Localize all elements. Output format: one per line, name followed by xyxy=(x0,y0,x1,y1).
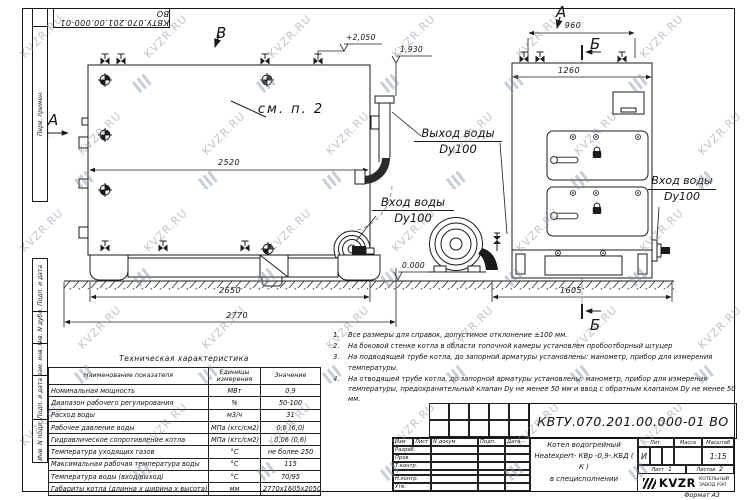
spec-header-units: Единицы измерения xyxy=(209,368,261,385)
spec-cell: Температура уходящих газов xyxy=(49,446,209,458)
bolt-icon xyxy=(571,191,576,196)
spec-table: Наименование показателя Единицы измерени… xyxy=(48,367,321,496)
product-title: Котел водогрейный Heatexpert- КВр -0,9-.… xyxy=(530,438,637,491)
title-block-main: Изм Лист N докум. Подп. Дата Разраб. Про… xyxy=(392,437,735,492)
dim-body-length: 2520 xyxy=(199,158,259,167)
top-inverted-stamp: КВТУ.070.201.00.000-01 ВО xyxy=(53,8,170,28)
callout-water-outlet-dn: Dy100 xyxy=(414,142,502,156)
sig-role: Разраб. xyxy=(393,446,431,454)
note-number: 1. xyxy=(333,330,348,340)
rev-header-row: Изм Лист N докум. Подп. Дата xyxy=(393,438,530,446)
sidebar-box-inv-dubl: Инв. N дубл. xyxy=(32,311,48,345)
spec-header-name: Наименование показателя xyxy=(49,368,209,385)
valve-icon xyxy=(536,52,545,63)
note-item: 4. На отводящей трубе котла, до запорной… xyxy=(333,374,737,405)
spec-row: Номинальная мощностьМВт0,9 xyxy=(49,385,321,397)
spec-cell: Расход воды xyxy=(49,409,209,421)
rev-header: Изм xyxy=(393,438,413,446)
level-ground: 0.000 xyxy=(402,261,425,270)
sidebar-box-vzam-inv: Взам. инв. N xyxy=(32,343,48,377)
document-number: КВТУ.070.201.00.000-01 ВО xyxy=(529,403,737,439)
sidebar-box-podp-data-1: Подп. и дата xyxy=(32,258,48,313)
spec-cell: мм xyxy=(209,483,261,495)
spec-cell: 0,06 (0,6) xyxy=(261,434,321,446)
spec-row: Гидравлическое сопротивление котлаМПа (к… xyxy=(49,434,321,446)
spec-cell: Номинальная мощность xyxy=(49,385,209,397)
level-flue: 1,930 xyxy=(400,45,423,54)
company-name: КОТЕЛЬНЫЙ ЗАВОД РЭП xyxy=(699,477,729,488)
spec-row: Расход водым3/ч31 xyxy=(49,409,321,421)
lit-value: И xyxy=(638,447,650,465)
note-text: Все размеры для справок, допустимое откл… xyxy=(348,330,567,340)
rev-header: Подп. xyxy=(478,438,505,446)
callout-water-inlet-right-text: Вход воды xyxy=(648,174,716,190)
rev-header: N докум. xyxy=(431,438,478,446)
spec-cell: Габариты котла (длинна х ширина х высота… xyxy=(49,483,209,495)
company-name-line2: ЗАВОД РЭП xyxy=(699,483,729,489)
boiler-front-view xyxy=(428,17,670,319)
callout-water-inlet-left: Вход воды Dy100 xyxy=(372,195,454,226)
spec-cell: °С xyxy=(209,471,261,483)
sig-row: Разраб. xyxy=(393,446,530,454)
spec-cell: 70/95 xyxy=(261,471,321,483)
sheet-value: 1 xyxy=(668,466,672,473)
spec-cell: 50-100 xyxy=(261,397,321,409)
sidebar-label: Взам. инв. N xyxy=(37,341,44,380)
valve-icon xyxy=(261,54,270,65)
signature-table: Изм Лист N докум. Подп. Дата Разраб. Про… xyxy=(393,438,530,491)
spec-cell: 31 xyxy=(261,409,321,421)
bolt-icon xyxy=(636,135,641,140)
section-label-a-top: А xyxy=(556,3,566,21)
sig-role: Утв. xyxy=(393,483,431,491)
bolt-icon xyxy=(556,251,561,256)
spec-row: Габариты котла (длинна х ширина х высота… xyxy=(49,483,321,495)
sidebar-label: Инв. N подл. xyxy=(37,421,44,461)
spec-cell: °С xyxy=(209,446,261,458)
company-logo-cell: KVZR КОТЕЛЬНЫЙ ЗАВОД РЭП xyxy=(638,474,734,492)
product-title-line2: Heatexpert- КВр -0,9-.КБД ( К ) xyxy=(531,451,637,473)
mass-label: Масса xyxy=(674,438,703,447)
spec-cell: Максимальная рабочая температура воды xyxy=(49,458,209,470)
bolt-icon xyxy=(594,191,599,196)
dim-front-width: 1260 xyxy=(548,66,590,75)
callout-water-outlet: Выход воды Dy100 xyxy=(414,126,502,157)
spec-table-title: Техническая характеристика xyxy=(48,354,320,367)
bolt-icon xyxy=(601,251,606,256)
door-handle-icon xyxy=(551,213,578,220)
drawing-sheet: КВТУ.070.201.00.000-01 ВО Перв. примен. … xyxy=(0,0,750,500)
sidebar-label: Перв. примен. xyxy=(37,91,44,136)
section-label-a-left: А xyxy=(48,111,58,129)
spec-header-row: Наименование показателя Единицы измерени… xyxy=(49,368,321,385)
sheet-cell: Лист 1 xyxy=(638,465,686,474)
spec-cell: Рабочее давление воды xyxy=(49,421,209,433)
view-label-v: В xyxy=(216,24,226,42)
sig-role: Н.контр. xyxy=(393,475,431,483)
title-block-right: Лит. Масса Масштаб И 1:15 Лист 1 xyxy=(637,438,734,491)
spec-cell: МПа (кгс/см2) xyxy=(209,421,261,433)
spec-cell: 2770х1605х2050 xyxy=(261,483,321,495)
note-number: 4. xyxy=(333,374,348,405)
callout-see-note: см. п. 2 xyxy=(250,102,332,118)
valve-icon xyxy=(520,52,529,63)
sig-row: Н.контр. xyxy=(393,475,530,483)
sidebar-box-podp-data-2: Подп. и дата xyxy=(32,375,48,421)
spec-cell: Гидравлическое сопротивление котла xyxy=(49,434,209,446)
note-text: На подводящей трубе котла, до запорной а… xyxy=(348,352,737,372)
spec-row: Диапазон рабочего регулирования%50-100 xyxy=(49,397,321,409)
sidebar-box-inv-podl: Инв. N подл. xyxy=(32,419,48,463)
note-item: 3. На подводящей трубе котла, до запорно… xyxy=(333,352,737,372)
sheets-value: 2 xyxy=(719,466,723,473)
spec-cell: % xyxy=(209,397,261,409)
callout-water-inlet-right-dn: Dy100 xyxy=(648,190,716,204)
sig-role: Т.контр. xyxy=(393,462,431,470)
door-handle-icon xyxy=(551,157,578,164)
scale-value: 1:15 xyxy=(702,447,734,465)
rev-header: Дата xyxy=(505,438,530,446)
sig-role: Пров. xyxy=(393,454,431,462)
lit-label: Лит. xyxy=(638,438,674,447)
sig-row: Пров. xyxy=(393,454,530,462)
revision-grid xyxy=(429,403,529,437)
sidebar-box-perv-primen: Перв. примен. xyxy=(32,26,48,202)
spec-cell: 115 xyxy=(261,458,321,470)
bolt-icon xyxy=(594,135,599,140)
spec-row: Рабочее давление водыМПа (кгс/см2)0,6 (6… xyxy=(49,421,321,433)
spec-table-section: Техническая характеристика Наименование … xyxy=(48,354,320,496)
dim-base-length: 2650 xyxy=(200,286,260,295)
callout-water-outlet-text: Выход воды xyxy=(414,126,502,142)
scale-label: Масштаб xyxy=(702,438,734,447)
note-item: 1. Все размеры для справок, допустимое о… xyxy=(333,330,737,340)
spec-cell: 0,9 xyxy=(261,385,321,397)
callout-water-inlet-right: Вход воды Dy100 xyxy=(648,174,716,204)
spec-cell: Диапазон рабочего регулирования xyxy=(49,397,209,409)
dim-top-span: 960 xyxy=(553,21,593,30)
sig-row: Т.контр. xyxy=(393,462,530,470)
sidebar-label: Подп. и дата xyxy=(37,265,44,306)
spec-cell: Температура воды (вход/выход) xyxy=(49,471,209,483)
product-title-line3: в специсполнении xyxy=(531,474,637,485)
dim-overall-length: 2770 xyxy=(207,311,267,320)
sheet-label: Лист xyxy=(652,467,665,473)
note-number: 3. xyxy=(333,352,348,372)
valve-icon xyxy=(117,54,126,65)
spec-header-value: Значение xyxy=(261,368,321,385)
spec-cell: не более 250 xyxy=(261,446,321,458)
rev-header: Лист xyxy=(413,438,431,446)
kvzr-stripes-icon xyxy=(643,478,656,489)
bolt-icon xyxy=(571,135,576,140)
callout-water-inlet-left-dn: Dy100 xyxy=(372,211,454,225)
spec-row: Максимальная рабочая температура воды°С1… xyxy=(49,458,321,470)
valve-icon xyxy=(101,54,110,65)
section-label-b-top: Б xyxy=(590,35,600,53)
product-title-line1: Котел водогрейный xyxy=(531,440,637,451)
bolt-icon xyxy=(636,191,641,196)
note-item: 2. На боковой стенке котла в области топ… xyxy=(333,341,737,351)
sidebar-box-empty xyxy=(32,8,48,28)
notes-section: 1. Все размеры для справок, допустимое о… xyxy=(333,330,737,405)
spec-cell: МПа (кгс/см2) xyxy=(209,434,261,446)
spec-cell: °С xyxy=(209,458,261,470)
sidebar-label: Подп. и дата xyxy=(37,378,44,419)
level-top: +2,050 xyxy=(346,33,376,42)
callout-water-inlet-left-text: Вход воды xyxy=(372,195,454,211)
spec-row: Температура воды (вход/выход)°С70/95 xyxy=(49,471,321,483)
note-text: На отводящей трубе котла, до запорной ар… xyxy=(348,374,737,405)
sheets-cell: Листов 2 xyxy=(686,465,735,474)
dim-front-overall: 1605 xyxy=(550,286,592,295)
format-label: Формат А3 xyxy=(662,492,742,499)
sig-row: Утв. xyxy=(393,483,530,491)
note-number: 2. xyxy=(333,341,348,351)
kvzr-logo-text: KVZR xyxy=(659,476,696,490)
mass-value xyxy=(674,447,703,465)
spec-cell: МВт xyxy=(209,385,261,397)
spec-row: Температура уходящих газов°Сне более 250 xyxy=(49,446,321,458)
title-block: КВТУ.070.201.00.000-01 ВО Изм Лист N док… xyxy=(392,403,735,492)
sheets-label: Листов xyxy=(696,467,715,473)
spec-cell: м3/ч xyxy=(209,409,261,421)
valve-icon xyxy=(618,52,627,63)
spec-cell: 0,6 (6,0) xyxy=(261,421,321,433)
note-text: На боковой стенке котла в области топочн… xyxy=(348,341,672,351)
